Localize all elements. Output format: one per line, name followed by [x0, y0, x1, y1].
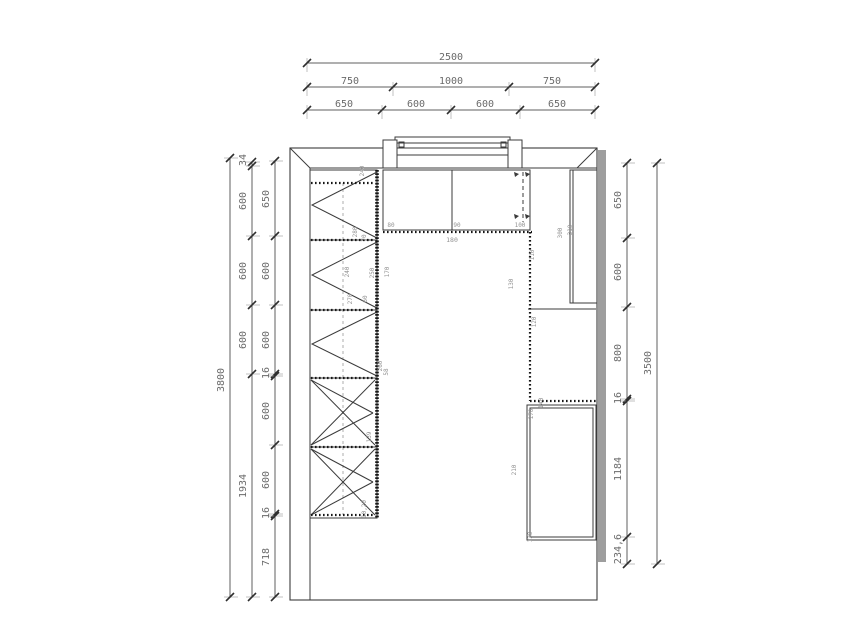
right-units [527, 170, 597, 540]
plan-label: 130 [508, 278, 515, 289]
tall-unit-right [570, 170, 597, 303]
dim-label: 1934 [238, 474, 249, 498]
dim-label: 1184 [613, 457, 624, 481]
plan-label: 240 [359, 165, 366, 176]
window-band [395, 137, 510, 155]
window-post-right [508, 140, 522, 168]
dim-chain-right-wall-segments: 650600800161184234,6 [613, 159, 635, 568]
plan-label: 120 [527, 531, 534, 542]
dim-chain-height-segments-mid: 346006006001934 [238, 154, 260, 601]
plan-label: 270 [347, 293, 354, 304]
plan-label: 10,20 [361, 500, 368, 518]
dim-label: 600 [238, 262, 249, 280]
dim-chain-right-wall-height: 3500 [643, 159, 665, 568]
dim-label: 600 [261, 331, 272, 349]
dim-label: 3500 [643, 351, 654, 375]
floorplan-canvas: 2500750100075065060060065038003460060060… [0, 0, 848, 636]
arrow-icon [525, 172, 530, 177]
dim-label: 1000 [439, 76, 463, 87]
dim-label: 750 [543, 76, 561, 87]
mitre-top-right [577, 148, 597, 168]
plan-label: 240 [344, 266, 351, 277]
dim-label: 650 [548, 99, 566, 110]
dim-label: 600 [238, 331, 249, 349]
plan-label: 300 [557, 227, 564, 238]
bottom-right-cabinet-outer [527, 405, 596, 540]
dim-label: 600 [613, 263, 624, 281]
dim-label: 650 [335, 99, 353, 110]
plan-label: 170 [384, 266, 391, 277]
dim-label: 718 [261, 548, 272, 566]
plan-label: 170 [528, 408, 535, 419]
dim-label: 650 [261, 190, 272, 208]
plan-label: 140 [538, 397, 545, 408]
dim-label: 16 [613, 392, 624, 404]
dim-label: 34 [238, 154, 249, 166]
bottom-right-cabinet-inner [530, 408, 593, 537]
outer-wall [290, 148, 597, 600]
plan-label: 280 [352, 226, 359, 237]
plan-label: 180 [446, 236, 458, 244]
plan-label: 210 [511, 464, 518, 475]
arrow-icon [514, 172, 519, 177]
plan-label: 310 [567, 224, 574, 235]
arrow-icon [525, 214, 530, 219]
arrow-icon [514, 214, 519, 219]
dimension-chains: 2500750100075065060060065038003460060060… [216, 52, 665, 601]
dim-label: 750 [341, 76, 359, 87]
door-swings [311, 172, 377, 515]
dim-label: 600 [238, 192, 249, 210]
right-wall-gray [598, 150, 606, 562]
dim-chain-width-segments-coarse: 7501000750 [303, 76, 599, 96]
dim-label: 234,6 [613, 534, 624, 564]
dim-label: 16 [261, 367, 272, 379]
dim-label: 600 [261, 262, 272, 280]
plan-label: 250 [369, 267, 376, 278]
dim-label: 2500 [439, 52, 463, 63]
plan-label: 80 [387, 222, 395, 229]
dim-label: 600 [261, 402, 272, 420]
plan-label: 110 [529, 249, 536, 260]
plan-label: 100 [515, 222, 526, 229]
dim-chain-height-segments-fine: 6506006001660060016718 [261, 157, 283, 601]
dim-label: 800 [613, 344, 624, 362]
dim-chain-overall-height: 3800 [216, 154, 238, 601]
top-cabinet-run [383, 170, 530, 230]
plan-label: 60 [362, 295, 369, 303]
dim-label: 600 [476, 99, 494, 110]
dim-label: 600 [261, 471, 272, 489]
mitre-top-left [290, 148, 310, 168]
walls [290, 148, 606, 600]
dim-chain-overall-width: 2500 [303, 52, 599, 72]
plan-label: 120 [531, 316, 538, 327]
dim-chain-width-segments-fine: 650600600650 [303, 99, 599, 119]
dim-label: 650 [613, 191, 624, 209]
plan-label: 58 [383, 368, 390, 376]
plan-label: 90 [453, 222, 461, 229]
plan-label: 70 [361, 234, 368, 242]
window [383, 137, 522, 168]
dim-label: 3800 [216, 368, 227, 392]
drawing-page: 2500750100075065060060065038003460060060… [0, 0, 848, 636]
plan-label: 139 [366, 431, 373, 442]
window-post-left [383, 140, 397, 168]
dim-label: 16 [261, 507, 272, 519]
dim-label: 600 [407, 99, 425, 110]
top-cabinet-outline [383, 170, 530, 230]
